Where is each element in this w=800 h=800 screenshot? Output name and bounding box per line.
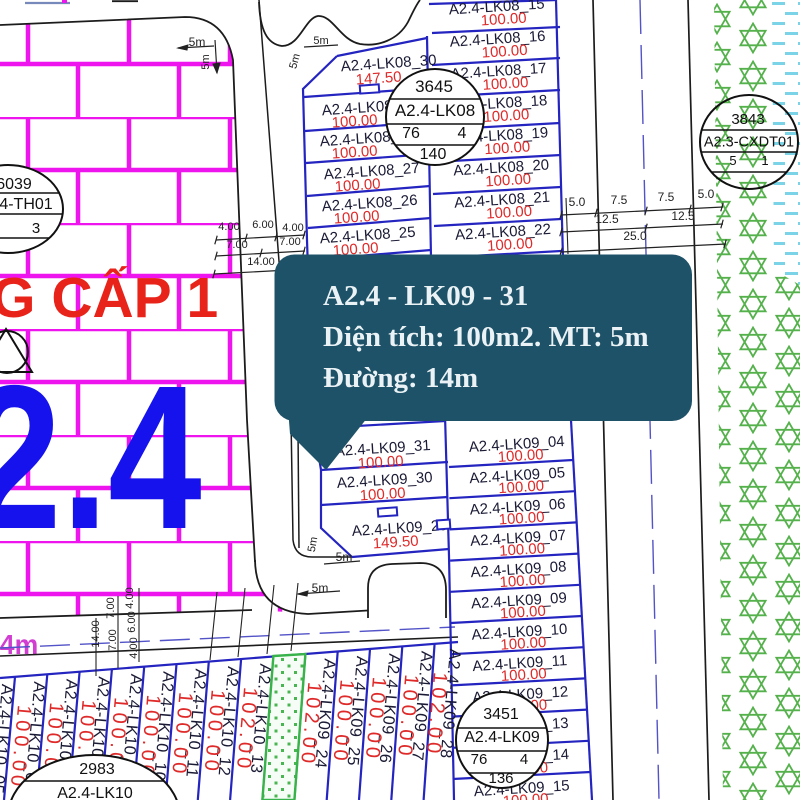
svg-text:100.00: 100.00 bbox=[485, 171, 532, 191]
svg-text:6039: 6039 bbox=[0, 176, 32, 193]
svg-text:100.00: 100.00 bbox=[499, 540, 546, 560]
svg-text:7.00: 7.00 bbox=[107, 629, 119, 650]
svg-text:100.00: 100.00 bbox=[486, 203, 533, 223]
svg-text:NG CẤP 1: NG CẤP 1 bbox=[0, 265, 218, 330]
svg-text:7.5: 7.5 bbox=[658, 190, 675, 204]
svg-text:2983: 2983 bbox=[79, 761, 115, 778]
svg-text:3843: 3843 bbox=[731, 111, 764, 128]
svg-text:25.0: 25.0 bbox=[623, 229, 647, 243]
svg-text:12.5: 12.5 bbox=[595, 212, 619, 226]
svg-text:4: 4 bbox=[458, 125, 467, 142]
svg-text:100.00: 100.00 bbox=[481, 42, 528, 62]
svg-text:136: 136 bbox=[488, 770, 513, 787]
svg-text:100.00: 100.00 bbox=[484, 138, 531, 158]
svg-text:3645: 3645 bbox=[415, 77, 453, 96]
svg-text:4.00: 4.00 bbox=[282, 222, 303, 234]
svg-text:76: 76 bbox=[471, 751, 488, 768]
svg-text:2.4: 2.4 bbox=[0, 342, 202, 572]
svg-text:100.00: 100.00 bbox=[331, 142, 378, 162]
svg-text:100.00: 100.00 bbox=[487, 235, 534, 255]
svg-text:100.00: 100.00 bbox=[334, 175, 381, 195]
svg-text:100.00: 100.00 bbox=[359, 485, 406, 505]
svg-text:100.00: 100.00 bbox=[499, 603, 546, 623]
svg-text:A2.4-TH01: A2.4-TH01 bbox=[0, 196, 53, 213]
svg-text:7.00: 7.00 bbox=[279, 236, 300, 248]
svg-text:A2.3-CXDT01: A2.3-CXDT01 bbox=[704, 135, 794, 151]
svg-text:76: 76 bbox=[402, 125, 420, 142]
svg-text:7.00: 7.00 bbox=[105, 597, 117, 618]
svg-text:6.00: 6.00 bbox=[252, 219, 273, 231]
svg-text:7.00: 7.00 bbox=[226, 239, 247, 251]
svg-text:A2.4-LK10: A2.4-LK10 bbox=[57, 785, 133, 800]
svg-text:100.00: 100.00 bbox=[498, 477, 545, 497]
svg-text:100.00: 100.00 bbox=[482, 74, 529, 94]
svg-text:A2.4-LK08: A2.4-LK08 bbox=[395, 101, 475, 120]
svg-text:100.00: 100.00 bbox=[357, 453, 404, 473]
svg-text:3: 3 bbox=[32, 220, 40, 237]
svg-text:100.00: 100.00 bbox=[500, 665, 547, 685]
svg-text:100.00: 100.00 bbox=[480, 10, 527, 30]
svg-text:100.00: 100.00 bbox=[483, 106, 530, 126]
svg-text:100.00: 100.00 bbox=[498, 509, 545, 529]
svg-text:12.5: 12.5 bbox=[671, 209, 695, 223]
svg-text:Đường: 14m: Đường: 14m bbox=[323, 362, 478, 394]
svg-text:100.00: 100.00 bbox=[499, 571, 546, 591]
svg-text:100.00: 100.00 bbox=[500, 634, 547, 654]
svg-text:100.00: 100.00 bbox=[331, 111, 378, 131]
svg-text:100.00: 100.00 bbox=[497, 446, 544, 466]
svg-text:5.0: 5.0 bbox=[569, 195, 586, 209]
svg-text:140: 140 bbox=[420, 146, 447, 163]
svg-text:14.00: 14.00 bbox=[247, 256, 275, 268]
svg-text:5.0: 5.0 bbox=[698, 187, 715, 201]
svg-text:5m: 5m bbox=[200, 54, 212, 69]
svg-text:6.00: 6.00 bbox=[126, 611, 138, 632]
svg-text:149.50: 149.50 bbox=[372, 533, 419, 553]
svg-text:14.00: 14.00 bbox=[90, 620, 102, 648]
svg-text:3451: 3451 bbox=[483, 706, 519, 723]
svg-text:4.00: 4.00 bbox=[218, 221, 239, 233]
svg-text:4: 4 bbox=[520, 751, 528, 768]
svg-text:4.00: 4.00 bbox=[128, 637, 140, 658]
svg-text:7.5: 7.5 bbox=[611, 193, 628, 207]
svg-text:Diện tích: 100m2. MT: 5m: Diện tích: 100m2. MT: 5m bbox=[323, 321, 649, 353]
svg-text:4.00: 4.00 bbox=[124, 587, 136, 608]
svg-text:A2.4-LK09: A2.4-LK09 bbox=[464, 729, 540, 746]
svg-text:5: 5 bbox=[729, 153, 736, 168]
svg-text:A2.4 - LK09 - 31: A2.4 - LK09 - 31 bbox=[323, 280, 528, 312]
svg-text:1: 1 bbox=[761, 153, 768, 168]
svg-text:100.00: 100.00 bbox=[333, 207, 380, 227]
